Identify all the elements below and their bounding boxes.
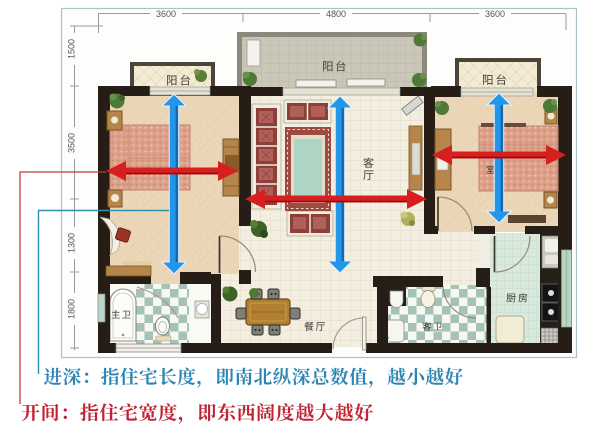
svg-text:1800: 1800 [67,299,77,319]
svg-text:1500: 1500 [67,39,77,59]
svg-text:3500: 3500 [67,133,77,153]
svg-text:4800: 4800 [326,9,346,19]
svg-text:3600: 3600 [156,9,176,19]
svg-text:1300: 1300 [67,233,77,253]
svg-text:3600: 3600 [485,9,505,19]
